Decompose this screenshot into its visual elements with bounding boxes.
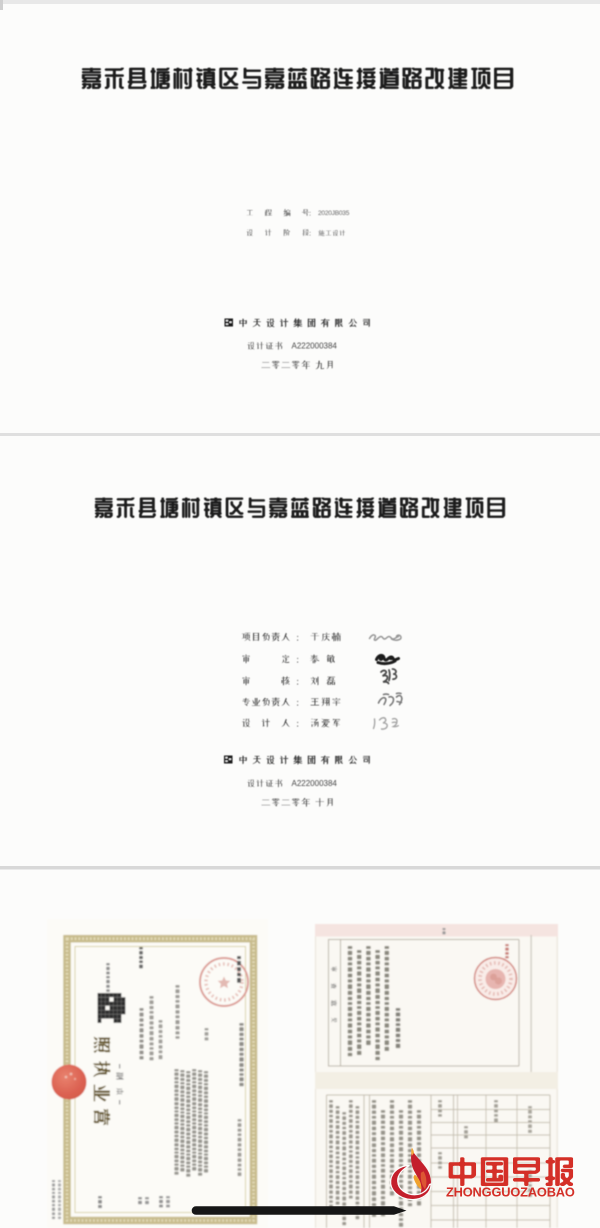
svg-text:A222000384: A222000384: [292, 779, 338, 788]
svg-text:ZHONGGUOZAOBAO: ZHONGGUOZAOBAO: [446, 1185, 575, 1200]
svg-text:A222000384: A222000384: [292, 342, 338, 351]
svg-text:2020JB035: 2020JB035: [318, 210, 350, 217]
